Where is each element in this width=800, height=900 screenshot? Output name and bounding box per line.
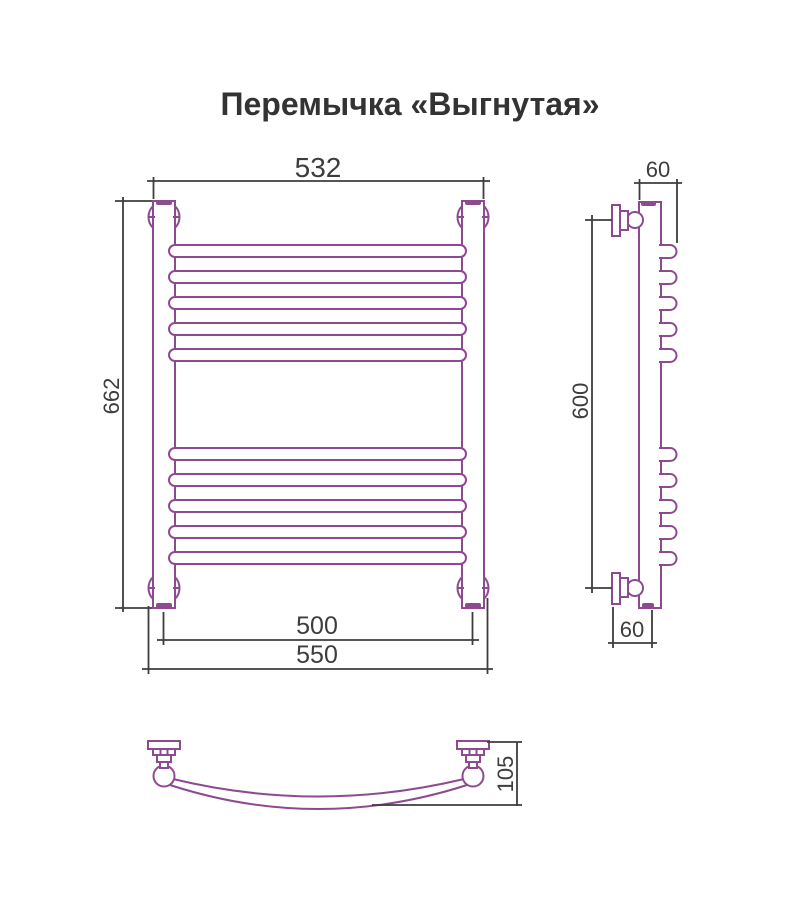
side-rung-tab <box>659 271 677 284</box>
wall-mount-nub-top <box>627 212 643 228</box>
side-rung-tab <box>659 245 677 258</box>
tube-cap <box>642 603 654 608</box>
front-rung <box>169 474 466 486</box>
side-rung-tab <box>659 526 677 539</box>
tube-cap <box>465 603 481 608</box>
front-tube-caps <box>156 200 481 608</box>
side-rung-tab <box>659 297 677 310</box>
front-rung <box>169 297 466 309</box>
bracket-plate <box>457 741 489 749</box>
dim-label-60-top: 60 <box>646 157 670 182</box>
wall-mount-flange-bottom <box>612 573 620 604</box>
side-view <box>612 201 677 608</box>
dim-label-500: 500 <box>296 612 338 640</box>
bottom-bracket-left <box>148 741 180 768</box>
front-rung <box>169 552 466 564</box>
dim-label-532: 532 <box>295 152 342 183</box>
front-left-tube <box>153 201 175 608</box>
side-tube <box>639 202 661 608</box>
front-rung <box>169 323 466 335</box>
front-rung <box>169 271 466 283</box>
dim-label-550: 550 <box>296 641 338 669</box>
dim-label-600: 600 <box>568 383 593 420</box>
front-rung <box>169 448 466 460</box>
side-rung-tab <box>659 474 677 487</box>
front-rung <box>169 349 466 361</box>
front-rung <box>169 245 466 257</box>
wall-mount-step-top <box>620 211 628 230</box>
front-right-tube <box>462 201 484 608</box>
front-view <box>149 200 489 608</box>
side-rung-tab <box>659 552 677 565</box>
wall-mount-step-bottom <box>620 578 628 597</box>
side-rung-tab <box>659 349 677 362</box>
tube-cap <box>156 200 172 205</box>
bottom-bracket-right <box>457 741 489 768</box>
side-rung-tab <box>659 448 677 461</box>
drawing-title: Перемычка «Выгнутая» <box>220 86 599 122</box>
side-rung-tab <box>659 500 677 513</box>
bottom-view <box>148 741 489 809</box>
wall-mount-flange-top <box>612 205 620 236</box>
technical-drawing-canvas: Перемычка «Выгнутая» <box>0 0 800 900</box>
wall-mount-nub-bottom <box>627 580 643 596</box>
front-rung <box>169 526 466 538</box>
bracket-plate <box>148 741 180 749</box>
tube-cap <box>641 201 656 206</box>
bracket-step <box>466 755 480 762</box>
tube-cap <box>156 603 172 608</box>
dim-label-105: 105 <box>493 756 518 793</box>
technical-drawing-page: Перемычка «Выгнутая» <box>0 0 800 900</box>
side-rung-tab <box>659 323 677 336</box>
front-rung <box>169 500 466 512</box>
tube-cap <box>465 200 481 205</box>
dim-label-60-bottom: 60 <box>620 617 644 642</box>
bracket-step <box>157 755 171 762</box>
dim-label-662: 662 <box>99 378 124 415</box>
